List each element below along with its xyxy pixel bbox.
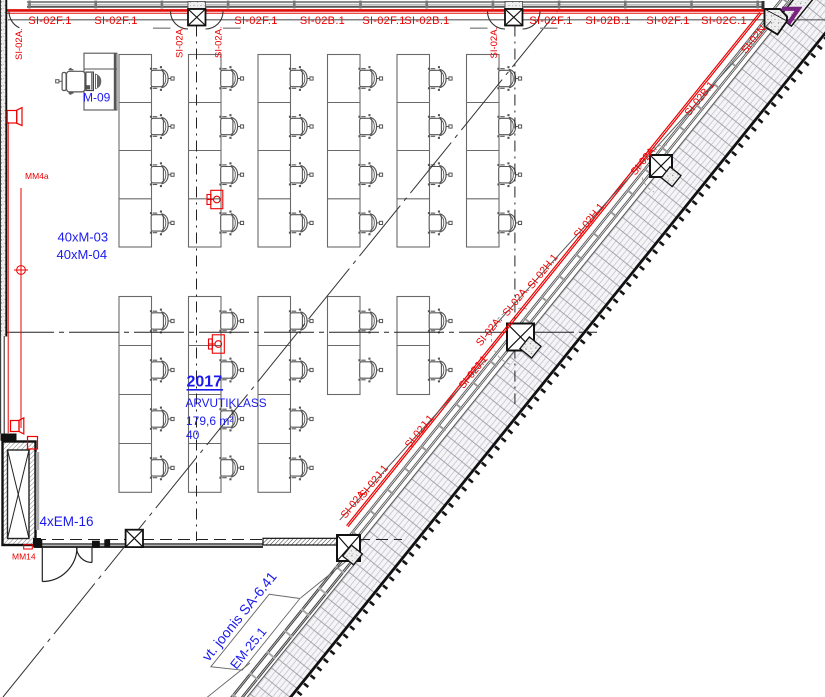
svg-text:SI-02B.1: SI-02B.1 bbox=[300, 15, 345, 27]
svg-text:40xM-04: 40xM-04 bbox=[57, 247, 108, 262]
svg-text:SI-02F.1: SI-02F.1 bbox=[362, 15, 405, 27]
svg-text:2017: 2017 bbox=[187, 374, 223, 391]
svg-text:SI-02F.1: SI-02F.1 bbox=[646, 15, 689, 27]
svg-text:MM14: MM14 bbox=[12, 552, 36, 562]
svg-text:SI-02A.: SI-02A. bbox=[175, 26, 186, 58]
svg-text:SI-02A.: SI-02A. bbox=[14, 28, 25, 60]
svg-text:40: 40 bbox=[186, 428, 200, 442]
svg-text:SI-02A.: SI-02A. bbox=[214, 26, 225, 58]
svg-text:179,6 m²: 179,6 m² bbox=[186, 414, 233, 428]
svg-text:SI-02F.1: SI-02F.1 bbox=[28, 15, 71, 27]
svg-text:ARVUTIKLASS: ARVUTIKLASS bbox=[186, 396, 267, 410]
svg-text:SI-02F.1: SI-02F.1 bbox=[529, 15, 572, 27]
svg-text:4xEM-16: 4xEM-16 bbox=[40, 514, 94, 529]
svg-text:SI-02C.1: SI-02C.1 bbox=[701, 15, 747, 27]
svg-text:SI-02A.: SI-02A. bbox=[489, 27, 500, 59]
svg-text:SI-02B.1: SI-02B.1 bbox=[404, 15, 449, 27]
svg-text:SI-02B.1: SI-02B.1 bbox=[585, 15, 630, 27]
svg-text:SI-02F.1: SI-02F.1 bbox=[94, 15, 137, 27]
svg-text:SI-02F.1: SI-02F.1 bbox=[234, 15, 277, 27]
svg-text:40xM-03: 40xM-03 bbox=[58, 230, 109, 245]
svg-text:M-09: M-09 bbox=[83, 91, 111, 105]
svg-text:MM4a: MM4a bbox=[25, 171, 49, 181]
